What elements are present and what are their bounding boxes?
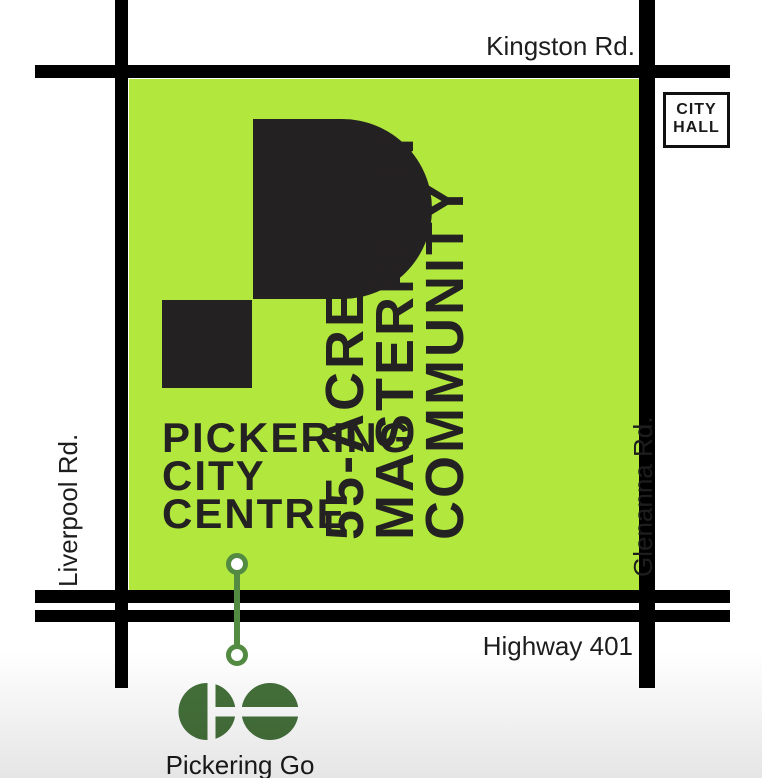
site-tagline-line3: COMMUNITY bbox=[420, 100, 470, 540]
connector-line bbox=[234, 570, 240, 648]
site-tagline-line1: 55-ACRE bbox=[320, 100, 370, 540]
site-tagline-line2: MASTERPLAN bbox=[370, 100, 420, 540]
road-liverpool bbox=[115, 0, 128, 688]
city-hall-line2: HALL bbox=[666, 119, 727, 137]
station-label: Pickering Go bbox=[166, 751, 315, 778]
connector-ring-bottom-icon bbox=[226, 644, 248, 666]
go-transit-logo-icon bbox=[178, 682, 302, 741]
road-highway401-lower bbox=[35, 610, 730, 622]
pickering-p-logo-dot bbox=[162, 300, 252, 388]
road-label-highway401: Highway 401 bbox=[483, 631, 633, 661]
road-glenanna bbox=[639, 0, 655, 688]
city-hall-badge: CITY HALL bbox=[663, 92, 730, 148]
road-highway401-upper bbox=[35, 590, 730, 603]
road-kingston bbox=[35, 65, 730, 78]
site-tagline: 55-ACRE MASTERPLAN COMMUNITY bbox=[320, 100, 470, 540]
city-hall-line1: CITY bbox=[666, 101, 727, 119]
road-label-kingston: Kingston Rd. bbox=[486, 31, 635, 61]
road-label-liverpool: Liverpool Rd. bbox=[54, 422, 82, 587]
site-map: Kingston Rd. Highway 401 Liverpool Rd. G… bbox=[0, 0, 762, 778]
road-label-glenanna: Glenanna Rd. bbox=[629, 422, 657, 577]
